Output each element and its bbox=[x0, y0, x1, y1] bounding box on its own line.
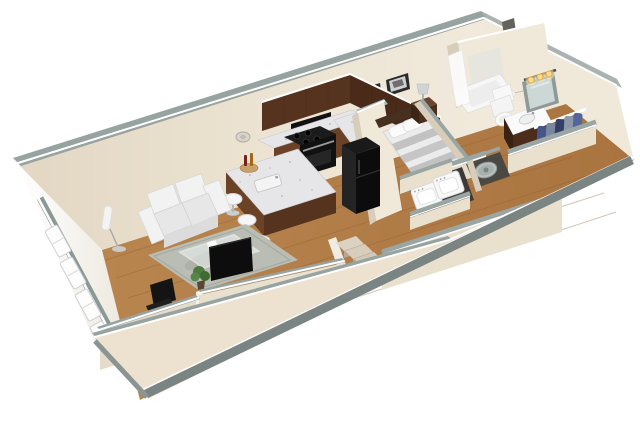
smoke-detector-center bbox=[240, 135, 246, 139]
wine-bottle bbox=[244, 155, 247, 166]
floorplan-svg bbox=[0, 0, 640, 427]
refrigerator-front bbox=[356, 146, 380, 214]
vanity-faucet bbox=[532, 112, 535, 115]
wine-bottle bbox=[250, 153, 253, 166]
floorplan-render bbox=[0, 0, 640, 427]
refrigerator-side bbox=[342, 145, 356, 214]
